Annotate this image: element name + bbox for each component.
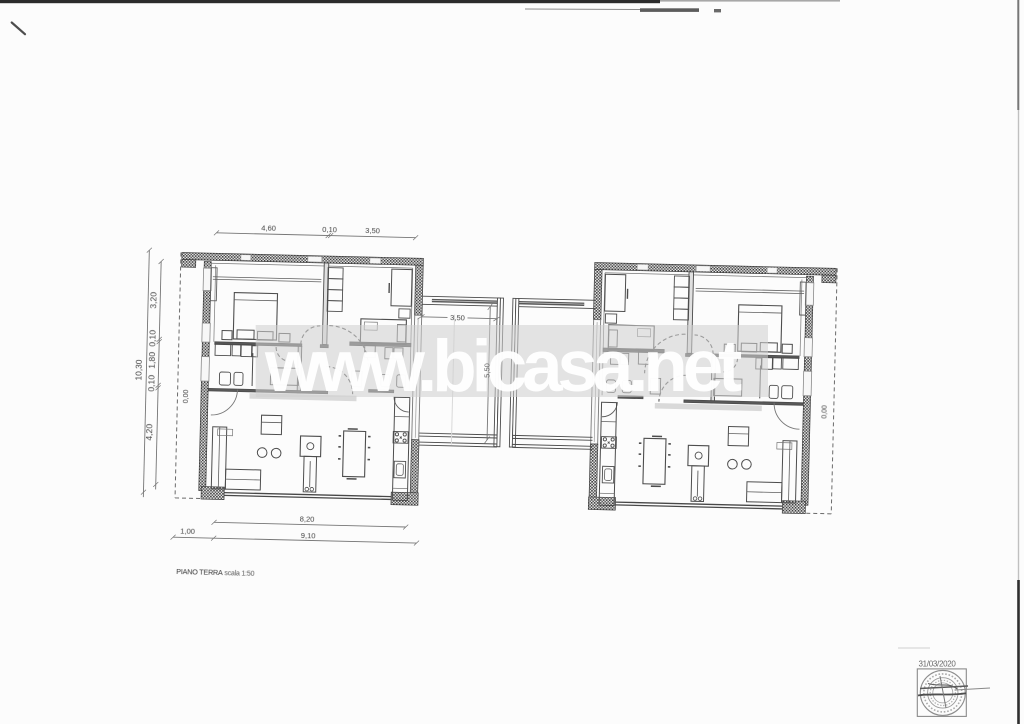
svg-text:www.bicasa.net: www.bicasa.net [264,326,742,407]
svg-text:0,10: 0,10 [146,375,156,392]
svg-text:3,20: 3,20 [148,292,158,309]
svg-text:4,60: 4,60 [261,223,276,232]
svg-text:PIANO TERRA scala 1:50: PIANO TERRA scala 1:50 [176,567,255,578]
svg-text:9,10: 9,10 [301,531,316,540]
svg-text:0,00: 0,00 [183,389,190,403]
svg-text:3,50: 3,50 [450,313,465,322]
svg-text:8,20: 8,20 [300,514,315,523]
svg-text:0,00: 0,00 [821,405,828,419]
svg-text:4,20: 4,20 [144,424,154,441]
svg-text:31/03/2020: 31/03/2020 [919,659,957,668]
svg-text:1,00: 1,00 [180,526,195,535]
svg-text:0,10: 0,10 [322,225,337,234]
svg-text:5,50: 5,50 [482,363,491,378]
svg-text:0,10: 0,10 [147,330,157,347]
svg-text:10,30: 10,30 [133,359,144,381]
svg-text:3,50: 3,50 [365,226,380,235]
svg-text:1,80: 1,80 [147,352,157,369]
